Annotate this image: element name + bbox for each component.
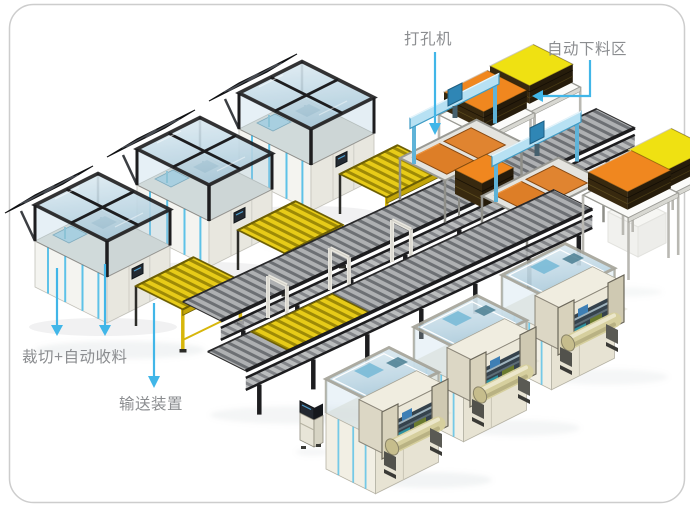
auto-unload-label: 自动下料区 [547, 40, 627, 58]
punch-machine-label: 打孔机 [404, 30, 452, 48]
cutting-collect-label: 裁切+自动收料 [22, 348, 128, 366]
scene: 裁切+自动收料 输送装置 打孔机 自动下料区 [0, 0, 690, 507]
production-line-diagram: 裁切+自动收料 输送装置 打孔机 自动下料区 [0, 0, 690, 507]
control-console [300, 401, 323, 449]
conveyor-device-label: 输送装置 [119, 395, 183, 413]
